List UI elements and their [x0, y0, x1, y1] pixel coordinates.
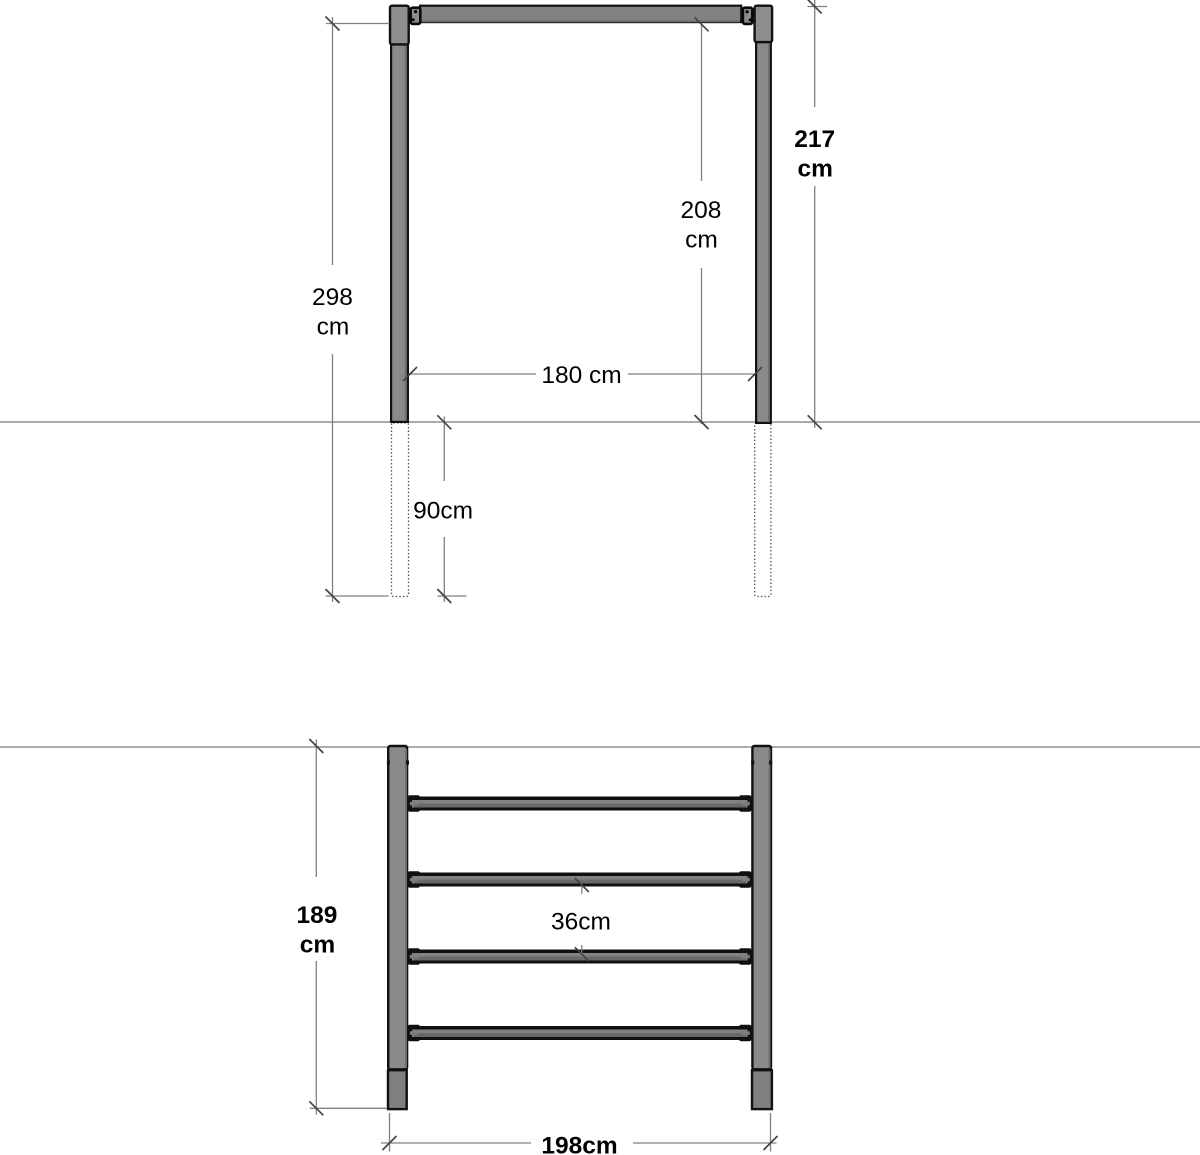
svg-text:189: 189 — [297, 902, 338, 929]
svg-text:cm: cm — [317, 314, 350, 341]
svg-text:cm: cm — [685, 226, 718, 253]
svg-text:217: 217 — [794, 126, 835, 153]
svg-text:cm: cm — [300, 932, 335, 959]
svg-text:180 cm: 180 cm — [541, 362, 621, 389]
svg-text:198cm: 198cm — [541, 1133, 617, 1155]
svg-text:cm: cm — [797, 156, 832, 183]
svg-text:298: 298 — [312, 284, 353, 311]
svg-text:90cm: 90cm — [413, 498, 473, 525]
svg-text:36cm: 36cm — [551, 909, 611, 936]
svg-text:208: 208 — [680, 197, 721, 224]
